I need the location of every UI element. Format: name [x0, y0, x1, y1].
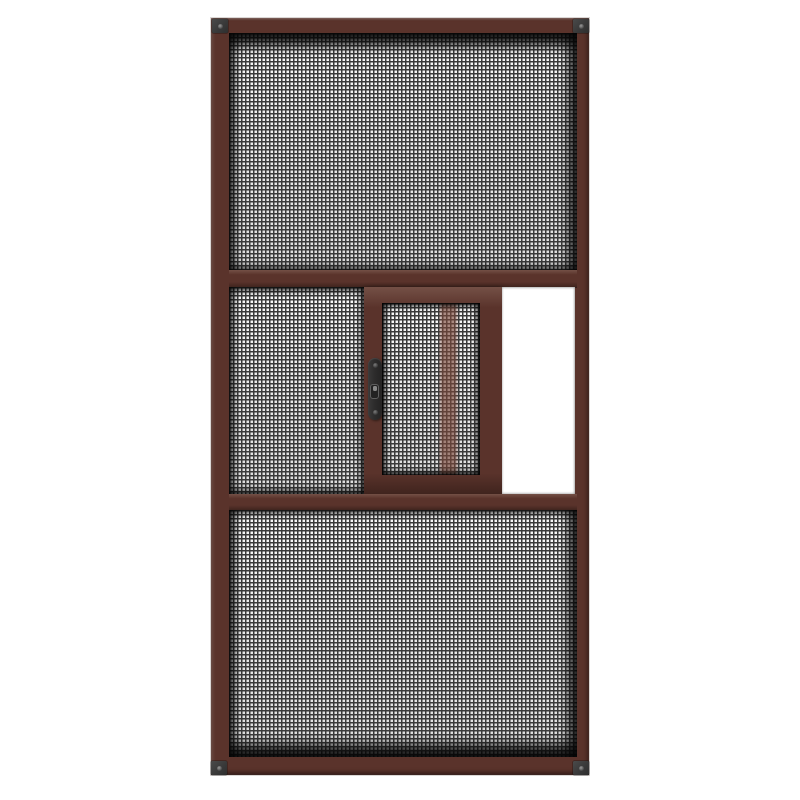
upper-rail — [229, 270, 577, 287]
top-mesh-panel — [229, 33, 577, 270]
screw-icon — [579, 766, 584, 771]
screen-door-frame — [211, 18, 589, 775]
handle-screw-icon — [373, 410, 378, 415]
bottom-mesh-panel — [229, 510, 577, 757]
middle-section — [229, 287, 577, 494]
middle-fixed-mesh-panel — [229, 287, 364, 494]
corner-cap-bottom-right — [573, 761, 589, 775]
open-slider-gap — [502, 287, 575, 494]
screw-icon — [218, 24, 223, 29]
sliding-sash — [364, 287, 502, 494]
corner-cap-top-left — [212, 19, 228, 33]
handle-screw-icon — [373, 363, 378, 368]
sash-handle — [368, 358, 382, 420]
handle-latch — [370, 384, 379, 399]
lower-rail — [229, 494, 577, 510]
corner-cap-top-right — [573, 19, 589, 33]
screw-icon — [579, 24, 584, 29]
sash-overlap-tint — [439, 303, 458, 475]
product-image — [0, 0, 800, 800]
corner-cap-bottom-left — [211, 761, 227, 775]
screw-icon — [217, 766, 222, 771]
sash-mesh — [382, 303, 480, 475]
